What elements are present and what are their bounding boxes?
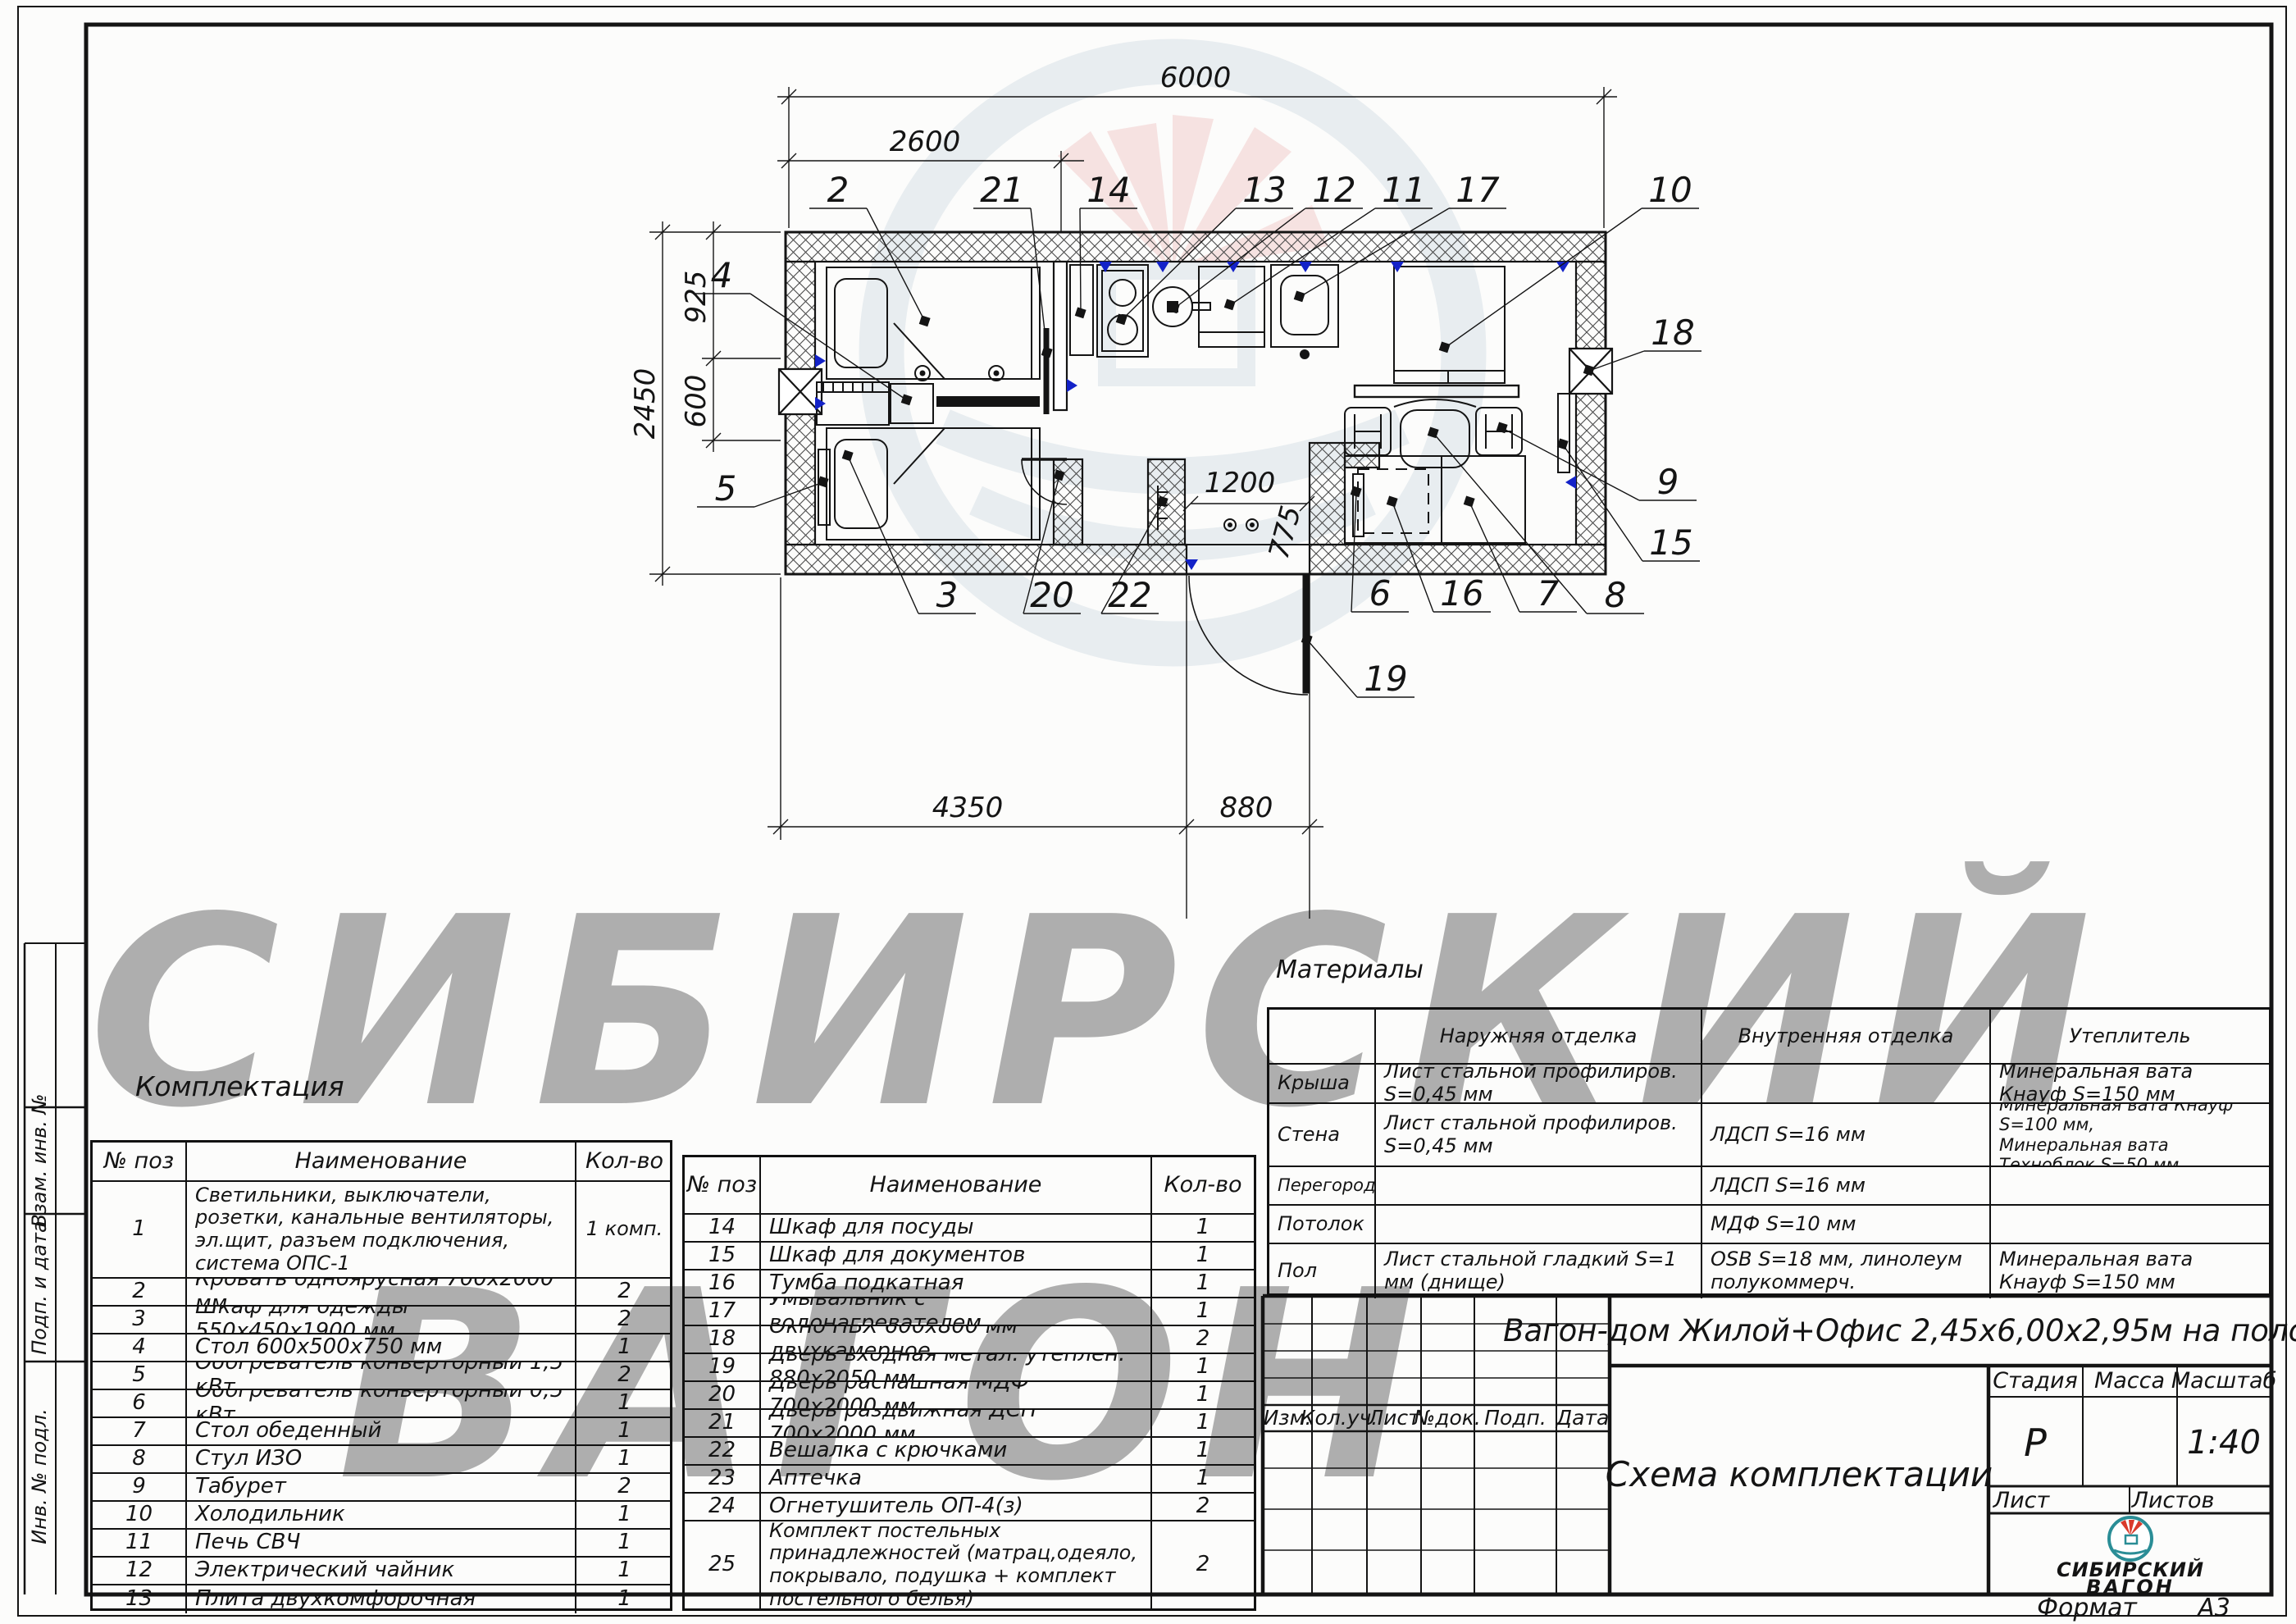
pos-cell: 18 — [685, 1326, 761, 1354]
qty-cell: 1 — [576, 1446, 672, 1474]
mat-cell: Лист стальной профилиров. S=0,45 мм — [1376, 1104, 1702, 1167]
shelf — [936, 396, 1040, 407]
equipment-table-1: № поз Наименование Кол-во 1 Светильники,… — [90, 1140, 672, 1611]
qty-cell: 1 — [1152, 1466, 1254, 1494]
floor-plan: 6000 2600 2450 925 600 4350 880 1200 775 — [629, 62, 1701, 919]
svg-text:Инв. № подл.: Инв. № подл. — [28, 1408, 51, 1544]
svg-text:16: 16 — [1440, 573, 1483, 614]
mat-cell — [1702, 1065, 1991, 1104]
pos-cell: 23 — [685, 1466, 761, 1494]
svg-text:880: 880 — [1220, 791, 1273, 824]
row-label: Крыша — [1269, 1065, 1376, 1104]
qty-cell: 1 — [576, 1418, 672, 1446]
qty-cell: 1 комп. — [576, 1182, 672, 1279]
pos-cell: 14 — [685, 1215, 761, 1243]
col-header: Наименование — [187, 1143, 576, 1182]
qty-cell: 1 — [1152, 1354, 1254, 1382]
name-cell: Огнетушитель ОП-4(з) — [761, 1494, 1152, 1521]
pos-cell: 1 — [93, 1182, 187, 1279]
svg-text:Масса: Масса — [2094, 1368, 2165, 1394]
svg-text:3: 3 — [936, 575, 959, 615]
name-cell: Окно ПВХ 600х800 мм двухкамерное — [761, 1326, 1152, 1354]
bed — [827, 267, 1040, 379]
qty-cell: 2 — [576, 1279, 672, 1307]
svg-text:Стадия: Стадия — [1993, 1368, 2078, 1394]
pos-cell: 19 — [685, 1354, 761, 1382]
mat-cell: Лист стальной профилиров. S=0,45 мм — [1376, 1065, 1702, 1104]
row-label: Пол — [1269, 1244, 1376, 1298]
svg-text:775: 775 — [1263, 503, 1308, 563]
equipment-table-2: № поз Наименование Кол-во 14 Шкаф для по… — [682, 1155, 1256, 1611]
name-cell: Комплект постельных принадлежностей (мат… — [761, 1521, 1152, 1608]
pos-cell: 11 — [93, 1530, 187, 1558]
pos-cell: 22 — [685, 1438, 761, 1466]
name-cell: Дверь входная метал. утеплен. 880х2050 м… — [761, 1354, 1152, 1382]
svg-text:925: 925 — [680, 271, 713, 324]
svg-text:Лист: Лист — [1993, 1488, 2051, 1513]
equip-section-title: Комплектация — [135, 1070, 344, 1102]
mat-cell — [1376, 1167, 1702, 1206]
qty-cell: 1 — [576, 1390, 672, 1418]
pos-cell: 17 — [685, 1298, 761, 1326]
name-cell: Дверь раздвижная ДСП 700х2000 мм — [761, 1410, 1152, 1438]
pos-cell: 15 — [685, 1243, 761, 1270]
qty-cell: 1 — [1152, 1382, 1254, 1410]
qty-cell: 2 — [1152, 1521, 1254, 1608]
qty-cell: 2 — [576, 1362, 672, 1390]
name-cell: Плита двухкомфорочная — [187, 1585, 576, 1613]
svg-text:22: 22 — [1108, 575, 1151, 615]
svg-text:10: 10 — [1648, 170, 1692, 210]
mat-cell — [1991, 1167, 2269, 1206]
pos-cell: 21 — [685, 1410, 761, 1438]
svg-text:8: 8 — [1605, 575, 1627, 615]
svg-text:Листов: Листов — [2131, 1488, 2215, 1513]
svg-text:17: 17 — [1455, 170, 1500, 210]
pos-cell: 7 — [93, 1418, 187, 1446]
qty-cell: 1 — [1152, 1215, 1254, 1243]
qty-cell: 2 — [576, 1307, 672, 1334]
side-column-labels: Взам. инв. № Подп. и дата Инв. № подл. — [28, 1094, 51, 1544]
row-label: Стена — [1269, 1104, 1376, 1167]
svg-text:5: 5 — [715, 468, 737, 509]
svg-text:21: 21 — [980, 170, 1023, 210]
qty-cell: 2 — [1152, 1494, 1254, 1521]
svg-text:15: 15 — [1649, 522, 1692, 563]
name-cell: Обогреватель конверторный 0,5 кВт — [187, 1390, 576, 1418]
svg-text:6: 6 — [1369, 573, 1392, 614]
name-cell: Кровать одноярусная 700х2000 мм — [187, 1279, 576, 1307]
col-header: Наружняя отделка — [1376, 1010, 1702, 1065]
materials-table: Наружняя отделка Внутренняя отделка Утеп… — [1267, 1007, 2271, 1296]
mat-cell — [1376, 1206, 1702, 1244]
sheet-title: Схема комплектации — [1606, 1454, 1993, 1494]
pos-cell: 25 — [685, 1521, 761, 1608]
svg-text:2450: 2450 — [629, 368, 662, 440]
svg-text:7: 7 — [1537, 573, 1560, 614]
svg-text:Подп. и дата: Подп. и дата — [28, 1220, 51, 1355]
svg-text:Масштаб: Масштаб — [2171, 1368, 2276, 1394]
qty-cell: 1 — [576, 1502, 672, 1530]
svg-text:13: 13 — [1242, 170, 1286, 210]
mat-cell: ЛДСП S=16 мм — [1702, 1104, 1991, 1167]
svg-text:Взам. инв. №: Взам. инв. № — [28, 1094, 51, 1228]
svg-text:Формат: Формат — [2037, 1594, 2138, 1622]
materials-section-title: Материалы — [1276, 956, 1424, 984]
name-cell: Светильники, выключатели, розетки, канал… — [187, 1182, 576, 1279]
svg-text:2600: 2600 — [890, 125, 961, 158]
pos-cell: 10 — [93, 1502, 187, 1530]
name-cell: Аптечка — [761, 1466, 1152, 1494]
col-header: № поз — [93, 1143, 187, 1182]
svg-text:20: 20 — [1030, 575, 1073, 615]
pos-cell: 2 — [93, 1279, 187, 1307]
svg-text:1200: 1200 — [1205, 467, 1276, 500]
pos-cell: 5 — [93, 1362, 187, 1390]
row-label: Потолок — [1269, 1206, 1376, 1244]
svg-text:18: 18 — [1651, 312, 1694, 353]
qty-cell: 1 — [576, 1585, 672, 1613]
name-cell: Шкаф для посуды — [761, 1215, 1152, 1243]
row-label: Перегородка — [1269, 1167, 1376, 1206]
svg-text:4350: 4350 — [932, 791, 1004, 824]
svg-text:4: 4 — [711, 255, 733, 295]
name-cell: Обогреватель конверторный 1,5 кВт — [187, 1362, 576, 1390]
svg-text:Кол.уч.: Кол.уч. — [1301, 1406, 1378, 1430]
svg-text:А3: А3 — [2196, 1594, 2230, 1622]
name-cell: Электрический чайник — [187, 1558, 576, 1585]
pos-cell: 8 — [93, 1446, 187, 1474]
name-cell: Вешалка с крючками — [761, 1438, 1152, 1466]
svg-text:№док.: №док. — [1412, 1406, 1481, 1430]
stamp-header-labels: Изм. Кол.уч. Лист №док. Подп. Дата — [1264, 1406, 1610, 1430]
pos-cell: 9 — [93, 1474, 187, 1502]
doc-title: Вагон-дом Жилой+Офис 2,45х6,00х2,95м на … — [1503, 1313, 2296, 1348]
name-cell: Умывальник с водонагревателем — [761, 1298, 1152, 1326]
heater — [818, 449, 830, 525]
name-cell: Шкаф для документов — [761, 1243, 1152, 1270]
pos-cell: 24 — [685, 1494, 761, 1521]
company-logo: СИБИРСКИЙ ВАГОН — [2057, 1517, 2204, 1599]
col-header: Наименование — [761, 1157, 1152, 1215]
corner-cell — [1269, 1010, 1376, 1065]
scale-value: 1:40 — [2187, 1424, 2261, 1462]
svg-text:14: 14 — [1086, 170, 1130, 210]
qty-cell: 1 — [1152, 1298, 1254, 1326]
pos-cell: 4 — [93, 1334, 187, 1362]
drawing-sheet: СИБИРСКИЙ ВАГОН Взам. инв. № Подп. и дат… — [0, 0, 2296, 1624]
qty-cell: 1 — [1152, 1410, 1254, 1438]
svg-text:9: 9 — [1657, 462, 1679, 502]
col-header: Утеплитель — [1991, 1010, 2269, 1065]
washbasin — [1271, 265, 1338, 358]
svg-text:19: 19 — [1364, 659, 1407, 699]
col-header: Внутренняя отделка — [1702, 1010, 1991, 1065]
qty-cell: 1 — [1152, 1438, 1254, 1466]
qty-cell: 1 — [576, 1558, 672, 1585]
name-cell: Стул ИЗО — [187, 1446, 576, 1474]
name-cell: Печь СВЧ — [187, 1530, 576, 1558]
qty-cell: 2 — [1152, 1326, 1254, 1354]
mat-cell: Минеральная вата Кнауф S=150 мм — [1991, 1065, 2269, 1104]
pos-cell: 3 — [93, 1307, 187, 1334]
name-cell: Тумба подкатная — [761, 1270, 1152, 1298]
qty-cell: 1 — [576, 1530, 672, 1558]
mat-cell: ЛДСП S=16 мм — [1702, 1167, 1991, 1206]
pos-cell: 12 — [93, 1558, 187, 1585]
svg-text:12: 12 — [1312, 170, 1355, 210]
mat-cell: Минеральная вата Кнауф S=100 мм, Минерал… — [1991, 1104, 2269, 1167]
name-cell: Дверь распашная МДФ 700х2000 мм — [761, 1382, 1152, 1410]
svg-text:Подп.: Подп. — [1484, 1406, 1547, 1430]
svg-text:600: 600 — [680, 375, 713, 428]
mat-cell: МДФ S=10 мм — [1702, 1206, 1991, 1244]
name-cell: Табурет — [187, 1474, 576, 1502]
pos-cell: 6 — [93, 1390, 187, 1418]
mat-cell: OSB S=18 мм, линолеум полукоммерч. — [1702, 1244, 1991, 1298]
pos-cell: 13 — [93, 1585, 187, 1613]
mat-cell: Лист стальной гладкий S=1 мм (днище) — [1376, 1244, 1702, 1298]
sink — [1153, 287, 1210, 326]
col-header: Кол-во — [1152, 1157, 1254, 1215]
svg-text:Дата: Дата — [1556, 1406, 1610, 1430]
name-cell: Шкаф для одежды 550х450х1900 мм — [187, 1307, 576, 1334]
chair — [1476, 408, 1522, 455]
mat-cell: Минеральная вата Кнауф S=150 мм — [1991, 1244, 2269, 1298]
qty-cell: 2 — [576, 1474, 672, 1502]
svg-text:2: 2 — [827, 170, 850, 210]
wall-shelf — [1355, 385, 1519, 397]
qty-cell: 1 — [1152, 1243, 1254, 1270]
qty-cell: 1 — [576, 1334, 672, 1362]
col-header: № поз — [685, 1157, 761, 1215]
pos-cell: 16 — [685, 1270, 761, 1298]
qty-cell: 1 — [1152, 1270, 1254, 1298]
name-cell: Стол 600х500х750 мм — [187, 1334, 576, 1362]
name-cell: Холодильник — [187, 1502, 576, 1530]
svg-text:6000: 6000 — [1160, 62, 1232, 94]
stage-value: Р — [2024, 1421, 2047, 1465]
pos-cell: 20 — [685, 1382, 761, 1410]
svg-text:11: 11 — [1382, 170, 1425, 210]
name-cell: Стол обеденный — [187, 1418, 576, 1446]
mat-cell — [1991, 1206, 2269, 1244]
col-header: Кол-во — [576, 1143, 672, 1182]
